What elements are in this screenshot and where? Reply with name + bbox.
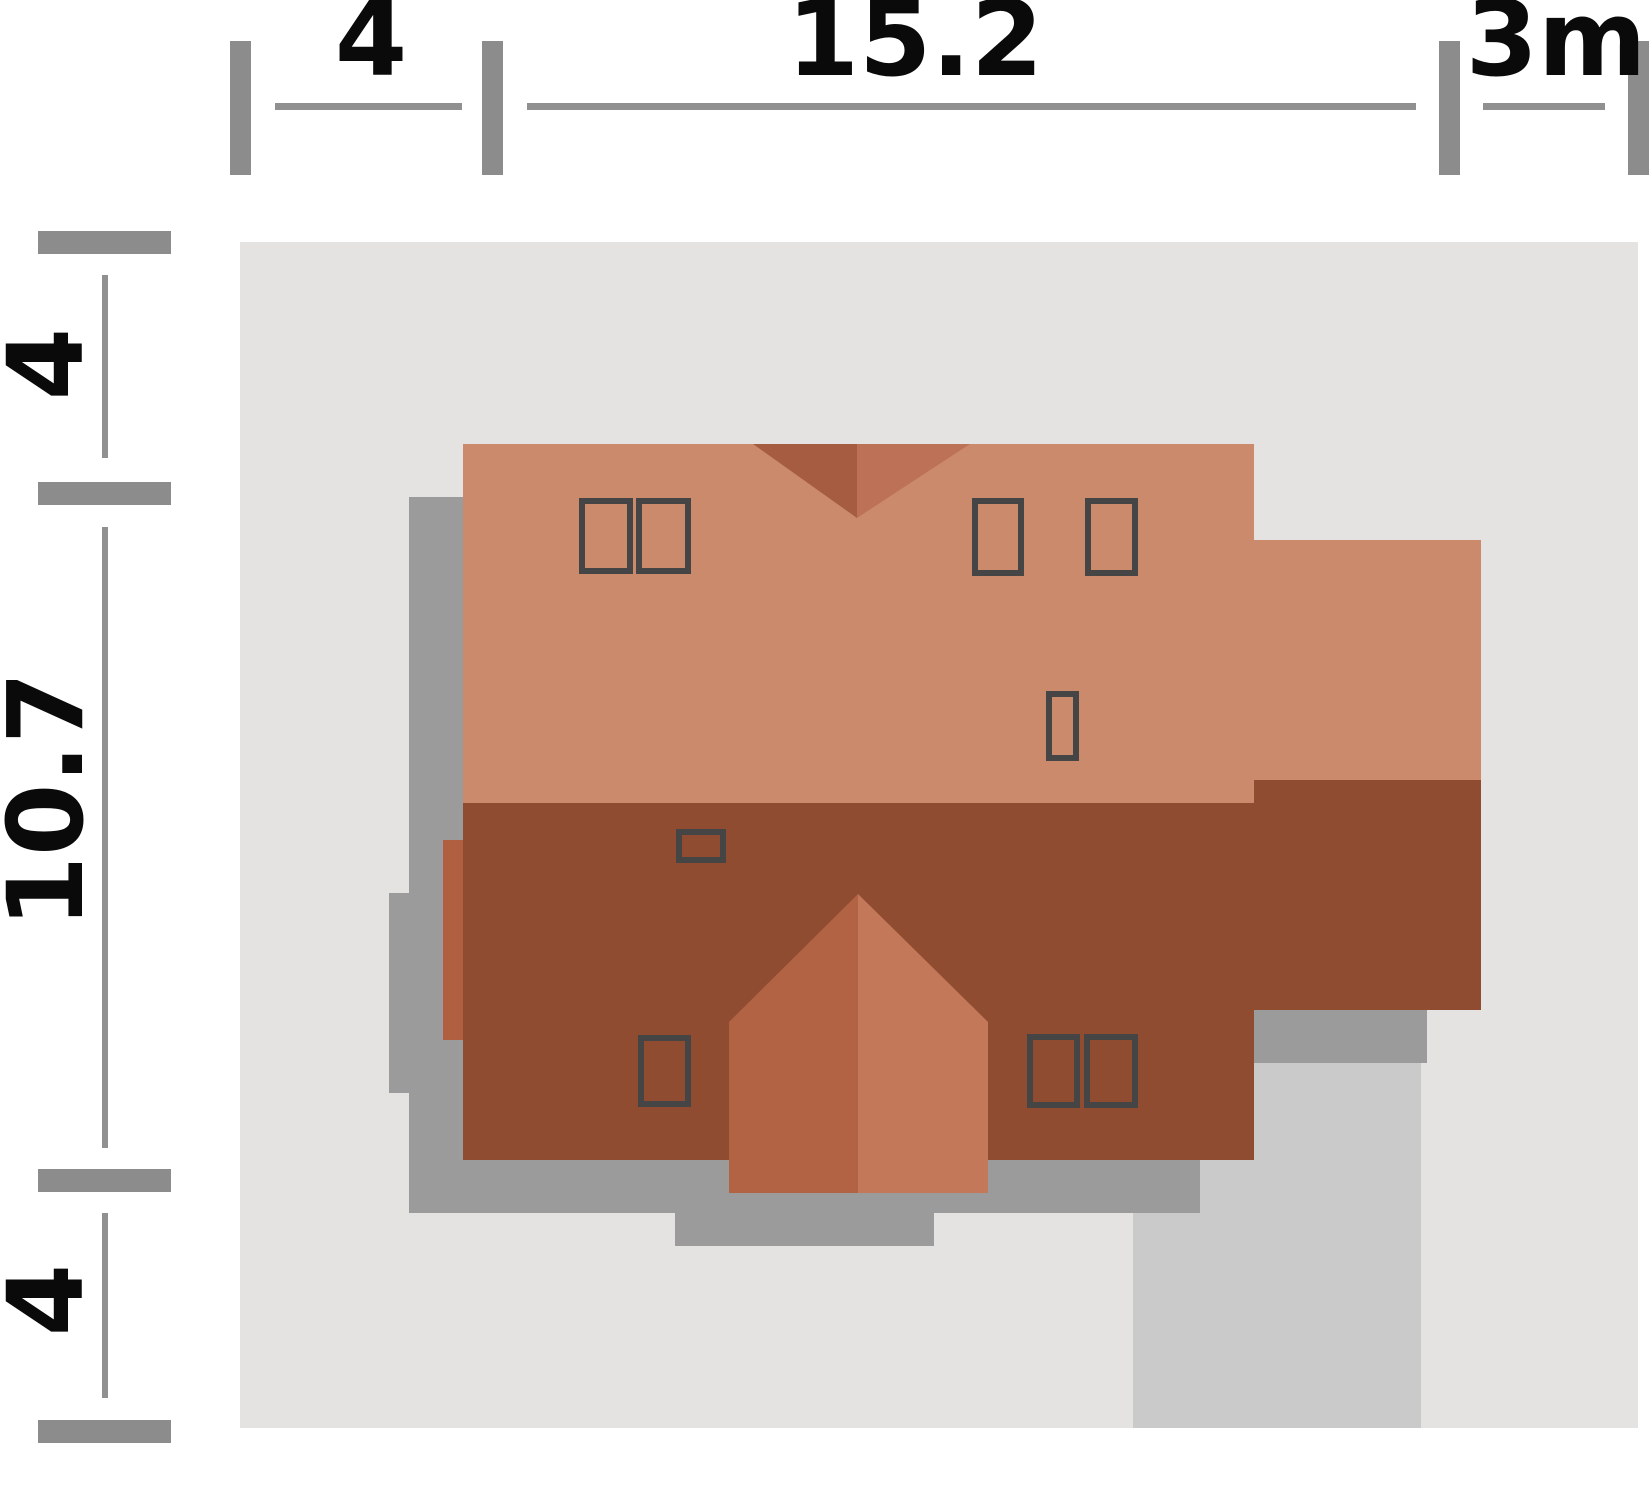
dimension-tick bbox=[230, 41, 251, 175]
side-wing-upper-roof bbox=[1254, 540, 1481, 780]
house-shadow-chimney bbox=[389, 893, 409, 1093]
dimension-line bbox=[275, 103, 462, 110]
roof-window bbox=[972, 498, 1024, 576]
dimension-label-left-bottom: 4 bbox=[0, 1264, 98, 1336]
roof-window-small bbox=[1046, 691, 1079, 761]
dimension-tick bbox=[38, 231, 171, 254]
dimension-tick bbox=[38, 1420, 171, 1443]
dimension-label-left-middle: 10.7 bbox=[0, 672, 98, 929]
dimension-tick bbox=[482, 41, 503, 175]
roof-window bbox=[638, 1035, 691, 1107]
roof-window bbox=[1085, 498, 1138, 576]
dimension-tick bbox=[38, 1169, 171, 1192]
roof-window bbox=[1084, 1034, 1138, 1108]
roof-window bbox=[636, 498, 691, 574]
dimension-tick bbox=[1439, 41, 1460, 175]
dimension-label-top-right: 3m bbox=[1466, 0, 1647, 91]
dimension-label-top-left: 4 bbox=[335, 0, 407, 91]
chimney bbox=[443, 840, 463, 1040]
dimension-label-top-middle: 15.2 bbox=[787, 0, 1044, 91]
site-plan-canvas: 4 15.2 3m 4 10.7 4 bbox=[0, 0, 1652, 1503]
dimension-line bbox=[1483, 103, 1605, 110]
roof-window bbox=[1027, 1034, 1080, 1108]
roof-window bbox=[579, 498, 633, 574]
roof-hatch bbox=[676, 829, 726, 863]
side-wing-lower-roof bbox=[1254, 780, 1481, 1010]
dimension-tick bbox=[38, 482, 171, 505]
dimension-label-left-top: 4 bbox=[0, 328, 98, 400]
dimension-line bbox=[527, 103, 1416, 110]
